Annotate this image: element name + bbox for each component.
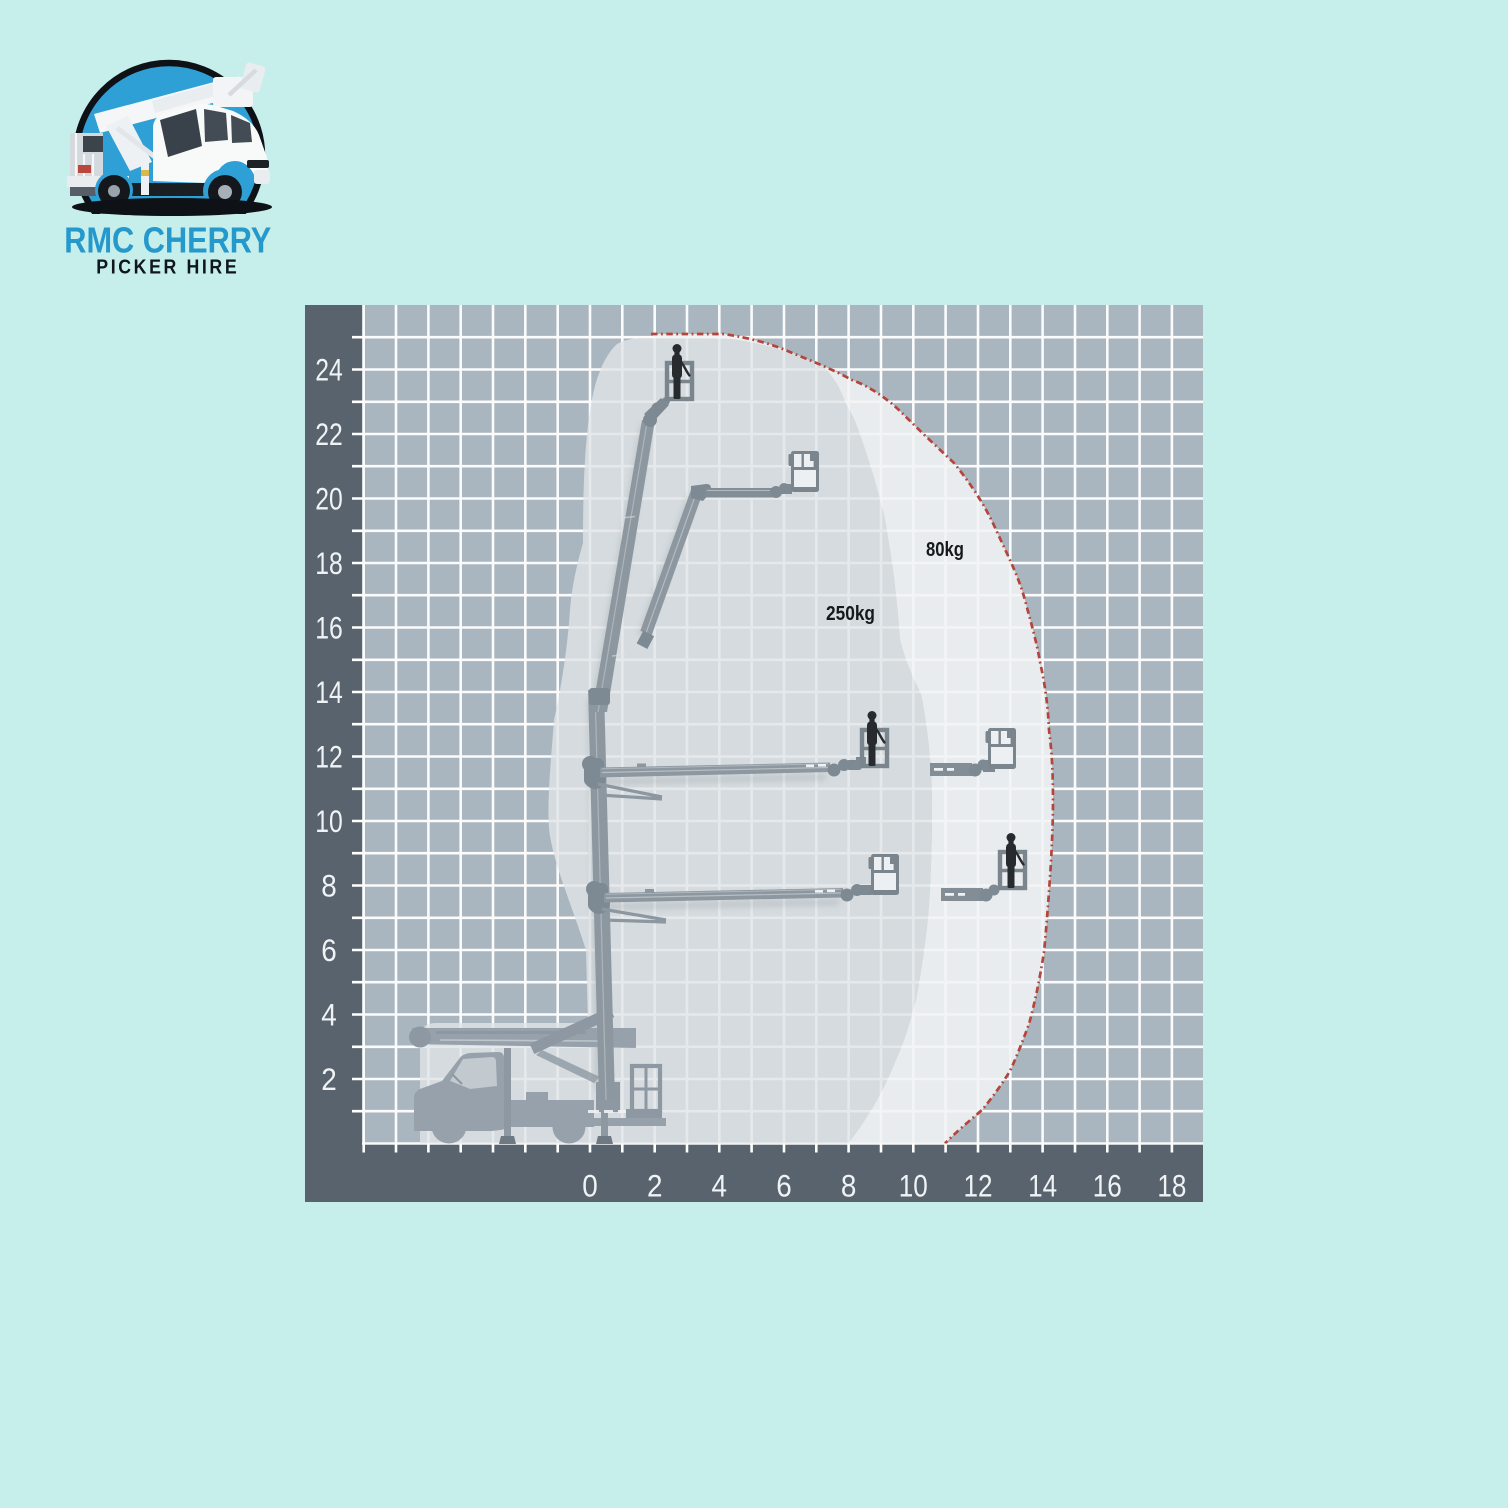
svg-text:10: 10 bbox=[315, 803, 343, 839]
svg-text:250kg: 250kg bbox=[826, 603, 875, 625]
svg-text:6: 6 bbox=[776, 1168, 792, 1204]
svg-text:4: 4 bbox=[321, 997, 337, 1033]
svg-text:0: 0 bbox=[582, 1168, 598, 1204]
svg-text:8: 8 bbox=[321, 868, 337, 904]
svg-text:14: 14 bbox=[1028, 1168, 1057, 1204]
svg-text:PICKER HIRE: PICKER HIRE bbox=[96, 256, 239, 279]
svg-text:20: 20 bbox=[315, 481, 343, 517]
svg-text:16: 16 bbox=[1093, 1168, 1122, 1204]
svg-text:12: 12 bbox=[315, 739, 343, 775]
svg-text:24: 24 bbox=[315, 352, 343, 388]
svg-text:10: 10 bbox=[899, 1168, 928, 1204]
svg-text:8: 8 bbox=[841, 1168, 857, 1204]
svg-text:6: 6 bbox=[321, 932, 337, 968]
svg-text:18: 18 bbox=[1157, 1168, 1186, 1204]
svg-text:16: 16 bbox=[315, 610, 343, 646]
svg-text:12: 12 bbox=[964, 1168, 993, 1204]
svg-text:RMC CHERRY: RMC CHERRY bbox=[64, 220, 271, 261]
svg-text:80kg: 80kg bbox=[926, 539, 964, 561]
svg-text:14: 14 bbox=[315, 674, 343, 710]
svg-text:22: 22 bbox=[315, 416, 343, 452]
svg-text:2: 2 bbox=[647, 1168, 663, 1204]
svg-text:2: 2 bbox=[321, 1061, 337, 1097]
svg-text:4: 4 bbox=[712, 1168, 728, 1204]
svg-text:18: 18 bbox=[315, 545, 343, 581]
